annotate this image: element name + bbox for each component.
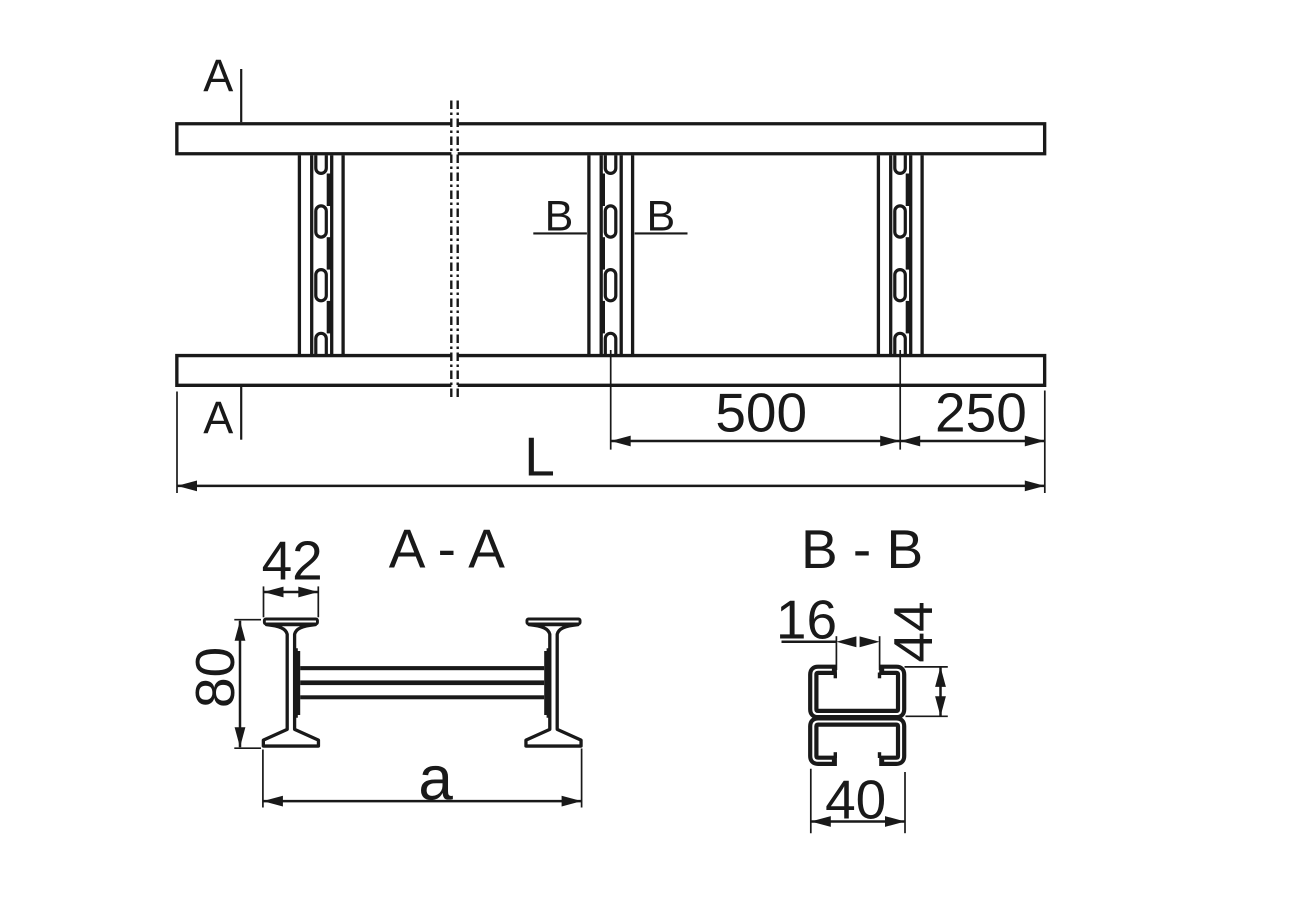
svg-text:A - A: A - A — [389, 518, 505, 580]
svg-text:500: 500 — [715, 382, 807, 444]
svg-text:B - B: B - B — [801, 518, 923, 580]
svg-text:44: 44 — [882, 601, 944, 662]
svg-text:A: A — [203, 392, 233, 443]
svg-text:L: L — [524, 426, 555, 488]
svg-text:40: 40 — [825, 769, 886, 831]
svg-text:42: 42 — [262, 530, 323, 592]
svg-text:B: B — [646, 193, 675, 241]
svg-text:A: A — [203, 50, 233, 101]
svg-text:16: 16 — [776, 589, 837, 651]
svg-text:80: 80 — [184, 647, 246, 708]
svg-text:B: B — [545, 193, 574, 241]
svg-text:a: a — [418, 745, 453, 814]
svg-text:250: 250 — [935, 382, 1027, 444]
